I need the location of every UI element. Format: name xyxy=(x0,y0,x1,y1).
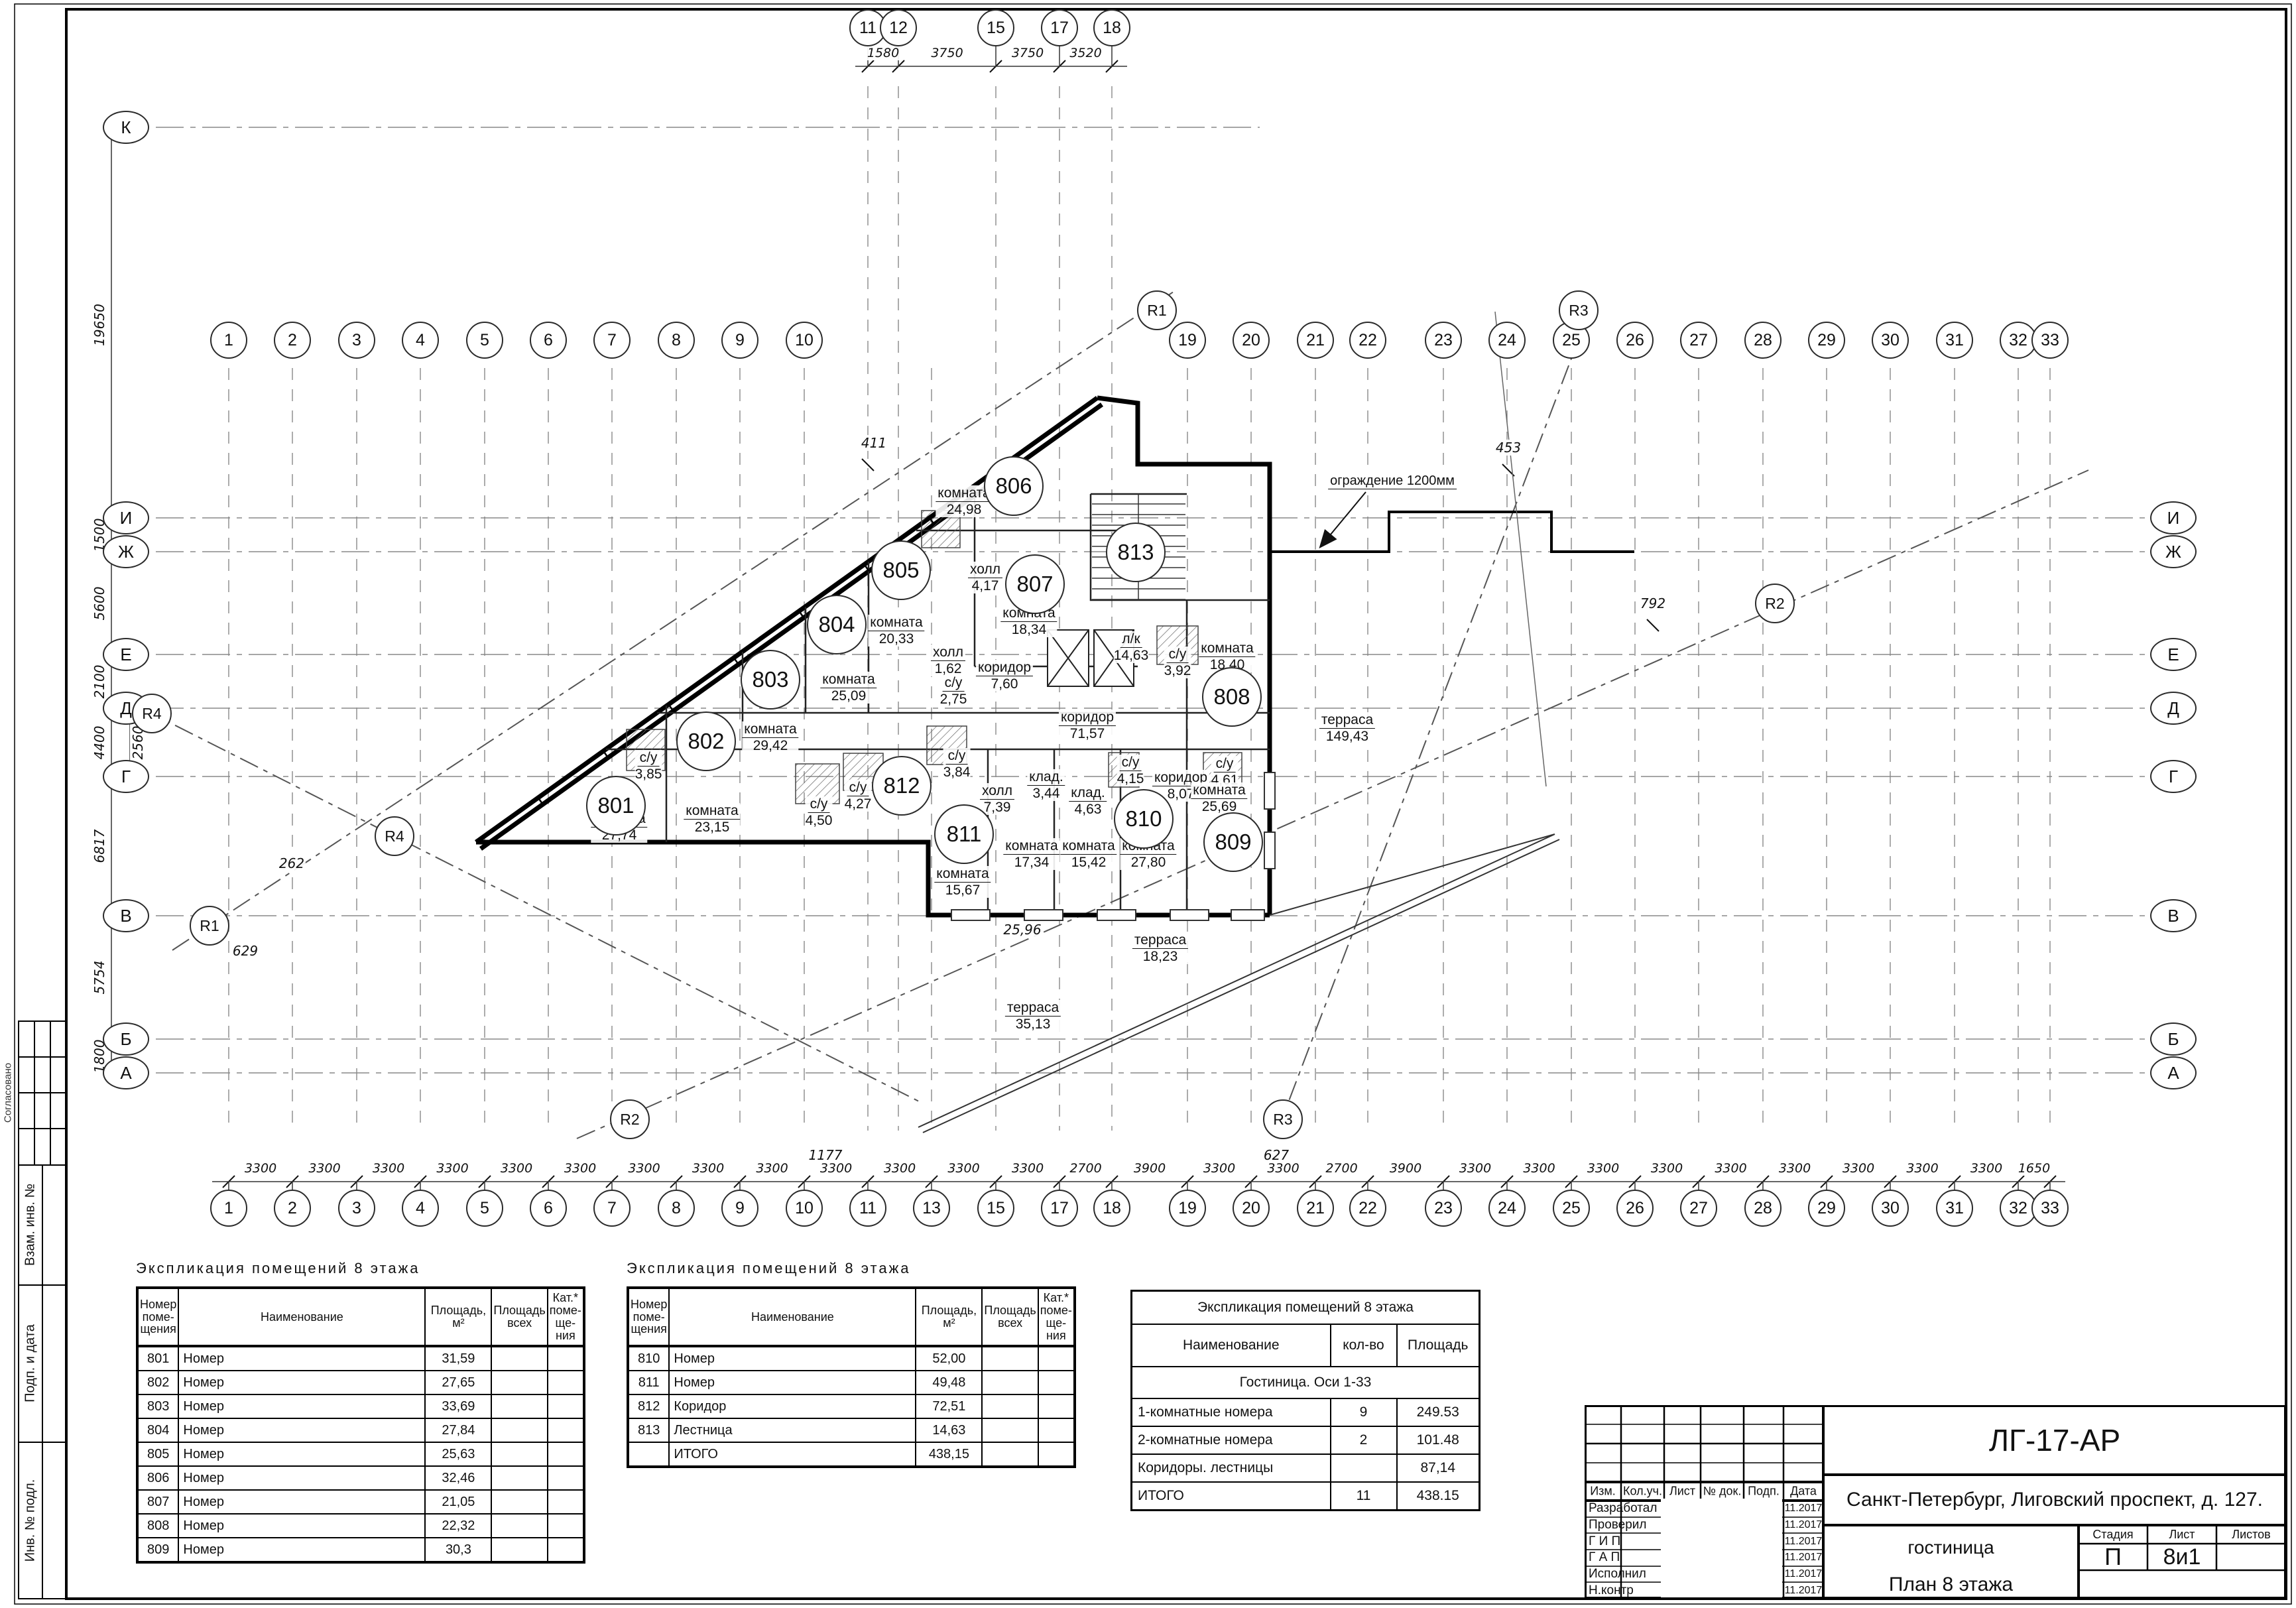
table-cell xyxy=(982,1371,1038,1394)
axis-bubble-bottom: 2 xyxy=(274,1190,311,1227)
sheet-number: 8и1 xyxy=(2147,1544,2216,1570)
axis-bubble-letter-right: Г xyxy=(2150,760,2197,793)
table-cell: 2 xyxy=(1331,1426,1397,1454)
annotation-dim: 629 xyxy=(231,943,259,959)
dimension-label: 3300 xyxy=(499,1161,534,1176)
room-number-bubble: 805 xyxy=(871,540,931,600)
table-cell xyxy=(548,1466,584,1490)
axis-bubble-bottom: 3 xyxy=(338,1190,375,1227)
stamp-role: Исполнил xyxy=(1589,1566,1646,1583)
stage-value: П xyxy=(2079,1544,2147,1570)
axis-bubble-mid: 7 xyxy=(593,322,631,359)
room-area-label: терраса18,23 xyxy=(1132,932,1188,964)
dimension-label: 1580 xyxy=(866,46,900,60)
stamp-column-header: Лист xyxy=(1669,1485,1695,1499)
room-area-label: комната17,34 xyxy=(1003,838,1059,870)
schedule-table: Номер поме- щенияНаименованиеПлощадь, м²… xyxy=(136,1286,585,1564)
table-cell: 101.48 xyxy=(1397,1426,1480,1454)
table-cell xyxy=(491,1394,547,1418)
dimension-label: 3750 xyxy=(1010,46,1045,60)
fence-annotation: ограждение 1200мм xyxy=(1328,473,1457,489)
stamp-column-header: Изм. xyxy=(1590,1485,1616,1499)
project-address: Санкт-Петербург, Лиговский проспект, д. … xyxy=(1823,1475,2286,1525)
room-area: 7,60 xyxy=(976,676,1033,692)
annotation-dim: 25,96 xyxy=(1002,922,1042,938)
terrace-fence xyxy=(1270,492,1634,552)
dimension-label: 2100 xyxy=(91,664,107,700)
room-name: с/у xyxy=(808,796,830,813)
table-cell xyxy=(982,1418,1038,1442)
summary-title: Экспликация помещений 8 этажа xyxy=(1132,1291,1480,1325)
column-header: кол-во xyxy=(1331,1324,1397,1367)
room-area: 14,63 xyxy=(1114,648,1149,664)
sheet-name: План 8 этажа xyxy=(1823,1570,2079,1599)
dimension-label: 3300 xyxy=(1266,1161,1300,1176)
room-area-label: с/у4,27 xyxy=(845,780,872,812)
radius-bubble: R2 xyxy=(610,1099,650,1139)
room-area: 4,17 xyxy=(968,578,1002,594)
axis-bubble-mid: 3 xyxy=(338,322,375,359)
room-area-label: с/у3,84 xyxy=(943,748,971,780)
room-area: 3,85 xyxy=(635,767,662,782)
room-area-label: с/у2,75 xyxy=(940,675,967,707)
axis-bubble-mid: 30 xyxy=(1872,322,1909,359)
axis-bubble-mid: 31 xyxy=(1936,322,1973,359)
room-number-bubble: 802 xyxy=(676,711,736,771)
table-cell: 810 xyxy=(628,1346,669,1371)
table-cell: 49,48 xyxy=(916,1371,982,1394)
table-cell: 812 xyxy=(628,1394,669,1418)
axis-bubble-bottom: 17 xyxy=(1041,1190,1078,1227)
table-cell: Номер xyxy=(178,1490,425,1514)
annotation-dim: 627 xyxy=(1262,1147,1290,1163)
room-name: комната xyxy=(742,721,798,738)
table-cell: 249.53 xyxy=(1397,1398,1480,1426)
room-area-label: л/к14,63 xyxy=(1114,631,1149,663)
axis-bubble-bottom: 20 xyxy=(1233,1190,1270,1227)
table-cell: Номер xyxy=(178,1418,425,1442)
room-name: комната xyxy=(1003,838,1059,855)
axis-bubble-mid: 24 xyxy=(1488,322,1526,359)
table-cell: Номер xyxy=(178,1466,425,1490)
dimension-label: 3900 xyxy=(1388,1161,1423,1176)
axis-bubble-letter-left: Ж xyxy=(103,535,149,568)
dimension-label: 2700 xyxy=(1068,1161,1103,1176)
radius-bubble: R4 xyxy=(132,694,172,733)
stamp-column-header: Подп. xyxy=(1748,1485,1780,1499)
sidebar-stamp-label: Инв. № подл. xyxy=(23,1479,38,1562)
axis-bubble-letter-right: В xyxy=(2150,899,2197,932)
table-cell xyxy=(548,1394,584,1418)
room-area-label: терраса35,13 xyxy=(1005,1000,1061,1032)
room-area-label: комната29,42 xyxy=(742,721,798,753)
column-header: Площадь, м² xyxy=(916,1288,982,1346)
column-header: Кат.* поме- ще- ния xyxy=(1038,1288,1075,1346)
axis-bubble-mid: 21 xyxy=(1297,322,1334,359)
stamp-role: Разработал xyxy=(1589,1501,1657,1517)
table-cell: 52,00 xyxy=(916,1346,982,1371)
room-name: комната xyxy=(868,615,924,631)
room-name: с/у xyxy=(1120,755,1142,771)
axis-bubble-bottom: 19 xyxy=(1169,1190,1206,1227)
table-cell: Номер xyxy=(178,1346,425,1371)
room-area-label: комната25,09 xyxy=(820,672,876,704)
room-area: 18,34 xyxy=(1000,622,1057,638)
room-schedule-table-1: Экспликация помещений 8 этажа Номер поме… xyxy=(136,1260,585,1564)
axis-bubble-letter-left: К xyxy=(103,111,149,144)
axis-bubble-mid: 1 xyxy=(210,322,247,359)
room-area: 4,63 xyxy=(1069,802,1107,818)
room-area: 4,27 xyxy=(845,796,872,812)
room-name: комната xyxy=(1199,641,1255,657)
axis-bubble-mid: 5 xyxy=(466,322,503,359)
axis-bubble-mid: 6 xyxy=(530,322,567,359)
table-cell xyxy=(491,1490,547,1514)
table-cell: 813 xyxy=(628,1418,669,1442)
dimension-label: 3300 xyxy=(1969,1161,2004,1176)
table-cell: Коридоры. лестницы xyxy=(1132,1454,1331,1482)
room-area-label: коридор71,57 xyxy=(1059,710,1116,741)
axis-bubble-letter-right: Д xyxy=(2150,692,2197,725)
room-area-label: с/у4,15 xyxy=(1117,755,1144,786)
axis-bubble-bottom: 30 xyxy=(1872,1190,1909,1227)
table-cell: 438,15 xyxy=(916,1442,982,1467)
column-header: Наименование xyxy=(669,1288,916,1346)
table-cell: ИТОГО xyxy=(1132,1482,1331,1510)
axis-bubble-mid: 28 xyxy=(1744,322,1782,359)
room-area-label: клад.4,63 xyxy=(1069,785,1107,817)
dimension-label: 3300 xyxy=(1713,1161,1748,1176)
room-number-bubble: 806 xyxy=(984,456,1044,516)
table-cell xyxy=(628,1442,669,1467)
table-cell: Номер xyxy=(669,1371,916,1394)
document-code: ЛГ-17-АР xyxy=(1823,1405,2286,1475)
table-cell xyxy=(1038,1371,1075,1394)
annotation-dim: 1177 xyxy=(808,1147,844,1163)
axis-bubble-bottom: 10 xyxy=(786,1190,823,1227)
table-cell: 808 xyxy=(137,1514,178,1538)
dimension-label: 3300 xyxy=(1778,1161,1812,1176)
column-header: Площадь всех xyxy=(491,1288,547,1346)
table-cell: Лестница xyxy=(669,1418,916,1442)
dimension-label: 3520 xyxy=(1068,46,1103,60)
table-cell: 32,46 xyxy=(425,1466,491,1490)
dimension-label: 3300 xyxy=(627,1161,661,1176)
table-cell xyxy=(1038,1442,1075,1467)
axis-bubble-top: 12 xyxy=(880,9,917,46)
column-header: Кат.* поме- ще- ния xyxy=(548,1288,584,1346)
dimension-label: 3300 xyxy=(1458,1161,1492,1176)
axis-bubble-bottom: 24 xyxy=(1488,1190,1526,1227)
room-name: коридор xyxy=(1059,710,1116,726)
axis-bubble-bottom: 18 xyxy=(1093,1190,1130,1227)
axis-bubble-bottom: 33 xyxy=(2031,1190,2069,1227)
table-cell xyxy=(491,1466,547,1490)
table-cell: Номер xyxy=(178,1538,425,1562)
axis-bubble-bottom: 22 xyxy=(1349,1190,1386,1227)
column-header: Номер поме- щения xyxy=(137,1288,178,1346)
annotation-dim: 411 xyxy=(860,435,888,451)
stamp-date: 11.2017 xyxy=(1783,1533,1823,1550)
radius-bubble: R3 xyxy=(1559,290,1599,330)
table-cell: ИТОГО xyxy=(669,1442,916,1467)
axis-bubble-bottom: 4 xyxy=(402,1190,439,1227)
axis-bubble-mid: 27 xyxy=(1680,322,1717,359)
room-name: терраса xyxy=(1132,932,1188,949)
table-cell xyxy=(1038,1394,1075,1418)
sheets-label: Листов xyxy=(2216,1525,2286,1544)
dimension-label: 6817 xyxy=(91,828,107,865)
dimension-label: 3300 xyxy=(435,1161,469,1176)
room-area: 3,92 xyxy=(1164,663,1191,679)
axis-bubble-bottom: 5 xyxy=(466,1190,503,1227)
table-cell xyxy=(491,1538,547,1562)
room-area-label: комната25,69 xyxy=(1191,782,1247,814)
stamp-column-header: Дата xyxy=(1790,1485,1817,1499)
table-cell xyxy=(548,1490,584,1514)
dimension-label: 2700 xyxy=(1324,1161,1359,1176)
dimension-label: 3300 xyxy=(691,1161,725,1176)
room-number-bubble: 807 xyxy=(1005,554,1065,614)
table-cell: 9 xyxy=(1331,1398,1397,1426)
room-area: 2,75 xyxy=(940,692,967,708)
room-area: 4,15 xyxy=(1117,771,1144,787)
table-cell: Номер xyxy=(669,1346,916,1371)
dimension-label: 1650 xyxy=(2017,1161,2051,1176)
table-cell xyxy=(548,1418,584,1442)
table-cell: 806 xyxy=(137,1466,178,1490)
axis-bubble-mid: 8 xyxy=(658,322,695,359)
stamp-role: Г А П xyxy=(1589,1550,1620,1566)
table-cell xyxy=(982,1442,1038,1467)
dimension-label: 3300 xyxy=(307,1161,341,1176)
room-area-label: с/у3,92 xyxy=(1164,647,1191,678)
table-cell: 27,65 xyxy=(425,1371,491,1394)
axis-bubble-top: 18 xyxy=(1093,9,1130,46)
table-cell xyxy=(1038,1418,1075,1442)
room-area-label: холл7,39 xyxy=(980,783,1014,815)
room-name: клад. xyxy=(1069,785,1107,802)
axis-bubble-bottom: 9 xyxy=(721,1190,758,1227)
room-area-label: комната15,42 xyxy=(1060,838,1117,870)
table-cell xyxy=(548,1346,584,1371)
dimension-label: 3300 xyxy=(1841,1161,1876,1176)
room-name: терраса xyxy=(1005,1000,1061,1017)
group-header: Гостиница. Оси 1-33 xyxy=(1132,1367,1480,1398)
table-cell: 11 xyxy=(1331,1482,1397,1510)
room-name: комната xyxy=(684,803,740,820)
dimension-label: 3300 xyxy=(1905,1161,1939,1176)
table-cell xyxy=(548,1442,584,1466)
room-area-label: комната20,33 xyxy=(868,615,924,647)
dimension-label: 3300 xyxy=(1650,1161,1684,1176)
sidebar-stamp-label: Подп. и дата xyxy=(23,1324,38,1402)
room-number-bubble: 808 xyxy=(1202,667,1262,727)
axis-bubble-letter-right: Ж xyxy=(2150,535,2197,568)
radius-bubble: R2 xyxy=(1755,584,1795,623)
room-name: комната xyxy=(1060,838,1117,855)
room-name: холл xyxy=(931,645,965,661)
room-name: холл xyxy=(980,783,1014,800)
axis-bubble-letter-left: Е xyxy=(103,638,149,671)
room-name: холл xyxy=(968,562,1002,578)
stamp-date: 11.2017 xyxy=(1783,1501,1823,1517)
sidebar-stamp-label: Взам. инв. № xyxy=(23,1184,38,1266)
dimension-label: 3300 xyxy=(1522,1161,1556,1176)
stamp-column-header: Кол.уч. xyxy=(1623,1485,1662,1499)
axis-bubble-mid: 2 xyxy=(274,322,311,359)
room-number-bubble: 804 xyxy=(807,595,867,654)
column-header: Наименование xyxy=(178,1288,425,1346)
dimension-label: 3300 xyxy=(946,1161,981,1176)
table-cell: 31,59 xyxy=(425,1346,491,1371)
column-header: Площадь всех xyxy=(982,1288,1038,1346)
table-cell: 811 xyxy=(628,1371,669,1394)
room-area-label: с/у4,50 xyxy=(806,796,833,828)
stamp-date: 11.2017 xyxy=(1783,1550,1823,1566)
table-cell xyxy=(491,1371,547,1394)
room-area-label: комната23,15 xyxy=(684,803,740,835)
dimension-label: 4400 xyxy=(91,725,107,761)
room-number-bubble: 810 xyxy=(1114,789,1174,849)
axis-bubble-letter-left: Б xyxy=(103,1022,149,1056)
dimension-label: 3750 xyxy=(930,46,964,60)
table-cell: 801 xyxy=(137,1346,178,1371)
axis-bubble-bottom: 28 xyxy=(1744,1190,1782,1227)
table-cell xyxy=(491,1418,547,1442)
stamp-role: Г И П xyxy=(1589,1533,1620,1550)
axis-bubble-bottom: 13 xyxy=(913,1190,950,1227)
table-cell: 21,05 xyxy=(425,1490,491,1514)
annotation-dim: 792 xyxy=(1639,595,1667,611)
room-name: с/у xyxy=(638,750,660,767)
table-cell xyxy=(548,1538,584,1562)
table-cell: Номер xyxy=(178,1371,425,1394)
dimension-label: 3300 xyxy=(371,1161,406,1176)
axis-bubble-letter-left: И xyxy=(103,501,149,534)
dimension-lines xyxy=(111,66,2065,1182)
room-area: 4,50 xyxy=(806,813,833,829)
axis-bubble-mid: 20 xyxy=(1233,322,1270,359)
room-area: 17,34 xyxy=(1003,855,1059,871)
axis-bubble-bottom: 23 xyxy=(1425,1190,1462,1227)
axis-bubble-mid: 29 xyxy=(1808,322,1845,359)
radius-bubble: R3 xyxy=(1263,1099,1303,1139)
axis-bubble-bottom: 21 xyxy=(1297,1190,1334,1227)
room-name: комната xyxy=(1191,782,1247,799)
table-cell xyxy=(491,1346,547,1371)
room-name: с/у xyxy=(1214,756,1236,773)
dimension-label: 3300 xyxy=(1586,1161,1620,1176)
table-cell: Номер xyxy=(178,1442,425,1466)
table-cell xyxy=(491,1442,547,1466)
axis-bubble-letter-right: И xyxy=(2150,501,2197,534)
table-cell: 802 xyxy=(137,1371,178,1394)
axis-bubble-mid: 22 xyxy=(1349,322,1386,359)
room-area: 71,57 xyxy=(1059,726,1116,742)
dimension-label: 3300 xyxy=(563,1161,597,1176)
table-cell: 803 xyxy=(137,1394,178,1418)
stamp-column-header: № док. xyxy=(1703,1485,1742,1499)
room-area: 25,69 xyxy=(1191,799,1247,815)
axis-bubble-bottom: 31 xyxy=(1936,1190,1973,1227)
axis-bubble-mid: 4 xyxy=(402,322,439,359)
table-cell: Коридор xyxy=(669,1394,916,1418)
table-cell: 2-комнатные номера xyxy=(1132,1426,1331,1454)
dimension-label: 5600 xyxy=(91,586,107,622)
table-cell: 1-комнатные номера xyxy=(1132,1398,1331,1426)
room-name: терраса xyxy=(1319,712,1375,729)
room-area: 18,23 xyxy=(1132,949,1188,965)
room-number-bubble: 809 xyxy=(1203,812,1263,872)
column-header: Площадь xyxy=(1397,1324,1480,1367)
table-cell xyxy=(548,1514,584,1538)
room-area: 27,80 xyxy=(1120,855,1176,871)
table-cell xyxy=(1038,1346,1075,1371)
table-cell: 805 xyxy=(137,1442,178,1466)
room-area: 29,42 xyxy=(742,738,798,754)
axis-bubble-bottom: 7 xyxy=(593,1190,631,1227)
room-area-label: клад.3,44 xyxy=(1027,769,1065,801)
table-cell: 22,32 xyxy=(425,1514,491,1538)
axis-bubble-letter-left: А xyxy=(103,1056,149,1089)
room-name: комната xyxy=(820,672,876,688)
schedule-table: Номер поме- щенияНаименованиеПлощадь, м²… xyxy=(627,1286,1076,1468)
room-number-bubble: 801 xyxy=(586,776,646,835)
dimension-label: 3300 xyxy=(755,1161,789,1176)
axis-bubble-bottom: 1 xyxy=(210,1190,247,1227)
room-area-label: коридор7,60 xyxy=(976,660,1033,692)
sheet-label: Лист xyxy=(2147,1525,2216,1544)
axis-bubble-bottom: 8 xyxy=(658,1190,695,1227)
column-header: Номер поме- щения xyxy=(628,1288,669,1346)
column-header: Наименование xyxy=(1132,1324,1331,1367)
room-name: с/у xyxy=(943,675,965,692)
table-cell: 804 xyxy=(137,1418,178,1442)
axis-bubble-mid: 9 xyxy=(721,322,758,359)
table-cell: 809 xyxy=(137,1538,178,1562)
dimension-label: 3900 xyxy=(1132,1161,1167,1176)
stamp-date: 11.2017 xyxy=(1783,1583,1823,1599)
axis-bubble-mid: 10 xyxy=(786,322,823,359)
annotation-dim: 453 xyxy=(1494,440,1522,456)
summary-table: Экспликация помещений 8 этажаНаименовани… xyxy=(1130,1290,1480,1511)
room-area: 20,33 xyxy=(868,631,924,647)
drawing-sheet: 1234567891011131517181920212223242526272… xyxy=(0,0,2296,1608)
room-area: 3,44 xyxy=(1027,786,1065,802)
axis-bubble-bottom: 15 xyxy=(977,1190,1014,1227)
room-name: л/к xyxy=(1120,631,1142,648)
radius-bubble: R1 xyxy=(190,906,229,946)
room-area: 24,98 xyxy=(936,502,992,518)
table-title: Экспликация помещений 8 этажа xyxy=(627,1260,1076,1277)
radius-bubble: R4 xyxy=(375,816,414,856)
axis-bubble-letter-right: А xyxy=(2150,1056,2197,1089)
table-cell: 27,84 xyxy=(425,1418,491,1442)
room-name: комната xyxy=(934,866,991,883)
dimension-label: 3300 xyxy=(882,1161,917,1176)
axis-bubble-letter-right: Б xyxy=(2150,1022,2197,1056)
axis-bubble-letter-right: Е xyxy=(2150,638,2197,671)
room-name: с/у xyxy=(847,780,869,796)
dimension-label: 3300 xyxy=(819,1161,853,1176)
room-area-label: холл4,17 xyxy=(968,562,1002,593)
table-cell: 72,51 xyxy=(916,1394,982,1418)
table-cell: 33,69 xyxy=(425,1394,491,1418)
room-area: 149,43 xyxy=(1319,729,1375,745)
annotation-dim: 262 xyxy=(278,855,306,871)
room-schedule-table-2: Экспликация помещений 8 этажа Номер поме… xyxy=(627,1260,1076,1468)
